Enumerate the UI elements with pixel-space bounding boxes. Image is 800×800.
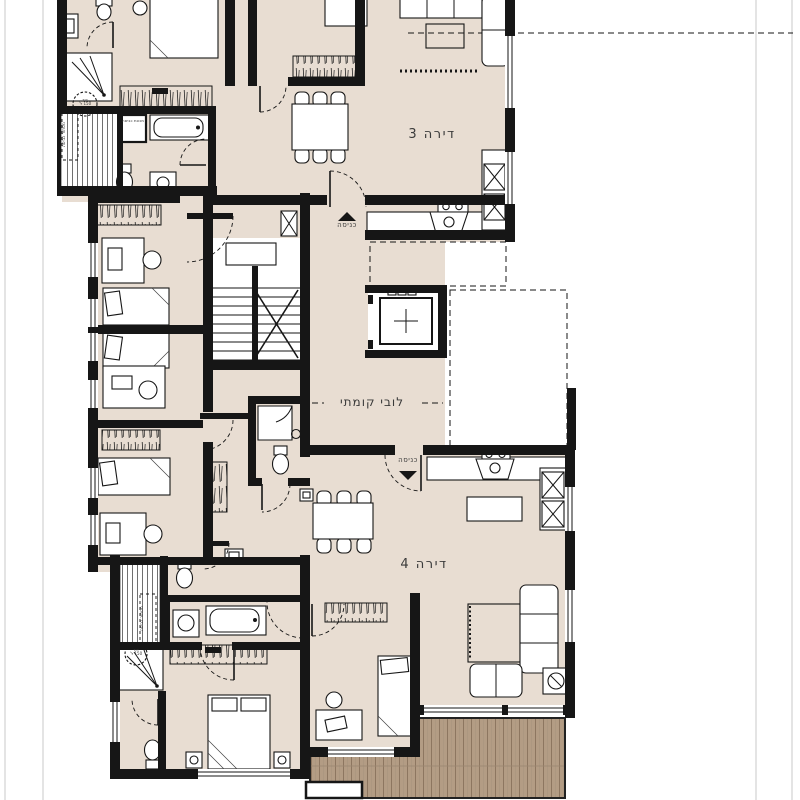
single-bed-icon (98, 458, 170, 495)
nightstand-icon (186, 752, 202, 768)
window-icon (508, 705, 563, 715)
entrance-apt4-label: כניסה (390, 457, 426, 465)
window-icon (424, 705, 502, 715)
nightstand-icon (274, 752, 290, 768)
desk-icon (103, 366, 165, 408)
apartment-4-label: דירה 4 (388, 558, 460, 572)
chair-icon (326, 692, 342, 708)
window-icon (565, 487, 575, 531)
window-icon (88, 243, 98, 277)
window-icon (505, 152, 515, 204)
dining-table-icon (292, 92, 348, 163)
chair-icon (144, 525, 162, 543)
sink-icon (300, 489, 313, 501)
entrance-apt3-label: כניסה (329, 222, 365, 230)
window-icon (88, 515, 98, 545)
chair-icon (143, 251, 161, 269)
laundry-screen-label: מסתור כביסה (63, 111, 68, 159)
tv-cabinet-icon (467, 497, 522, 521)
chair-icon (139, 381, 157, 399)
service-balcony-right (450, 290, 567, 446)
closet-icon (95, 205, 161, 225)
toilet-icon (273, 446, 289, 474)
window-icon (110, 702, 120, 742)
single-bed-icon (103, 288, 169, 325)
washing-machine-label: מכונת כביסה (121, 119, 145, 123)
bathtub-icon (206, 606, 266, 635)
apartment-3-label: דירה 3 (396, 128, 468, 142)
side-table-icon (133, 1, 147, 15)
window-icon (88, 468, 98, 498)
laundry-louvers-top-icon (63, 112, 116, 186)
window-icon (88, 299, 98, 327)
dining-table-icon (313, 491, 373, 553)
lobby-label: לובי קומתי (324, 396, 420, 409)
floor-plan-page: דירה 3 דירה 4 לובי קומתי כניסה כניסה מכו… (0, 0, 800, 800)
single-bed-icon (103, 331, 169, 368)
window-icon (565, 590, 575, 642)
laundry-screen-label: מסתור כביסה (141, 595, 146, 643)
shower-icon (62, 53, 112, 101)
bathtub-icon (150, 115, 210, 140)
toilet-icon (96, 0, 112, 20)
water-heater-label: דוד 150 ל' (73, 98, 97, 107)
single-bed-icon (378, 656, 412, 736)
closet-icon (102, 430, 160, 450)
window-icon (505, 36, 515, 108)
window-icon (88, 333, 98, 361)
window-icon (88, 380, 98, 408)
deck-planter-icon (306, 782, 362, 798)
closet-icon (293, 56, 359, 77)
window-icon (198, 769, 290, 779)
water-heater-label: דוד 150 ל' (124, 648, 148, 657)
washing-machine-icon (173, 610, 199, 637)
closet-icon (325, 603, 387, 622)
window-icon (328, 747, 394, 757)
shaft-icon (281, 211, 297, 236)
